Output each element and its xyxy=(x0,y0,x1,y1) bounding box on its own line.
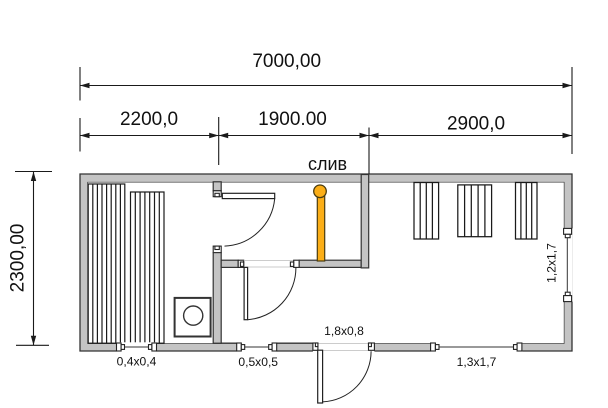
svg-text:0,5x0,5: 0,5x0,5 xyxy=(238,355,278,369)
svg-text:2300,00: 2300,00 xyxy=(8,224,29,293)
svg-text:0,4x0,4: 0,4x0,4 xyxy=(117,355,157,369)
svg-text:2200,0: 2200,0 xyxy=(120,109,178,130)
svg-text:1,8x0,8: 1,8x0,8 xyxy=(324,324,364,338)
svg-text:1900.00: 1900.00 xyxy=(258,109,327,130)
svg-text:2900,0: 2900,0 xyxy=(447,114,505,135)
svg-text:слив: слив xyxy=(308,154,347,174)
svg-text:7000,00: 7000,00 xyxy=(252,51,321,72)
svg-text:1,3x1,7: 1,3x1,7 xyxy=(457,355,497,369)
svg-text:1,2x1,7: 1,2x1,7 xyxy=(545,243,559,283)
